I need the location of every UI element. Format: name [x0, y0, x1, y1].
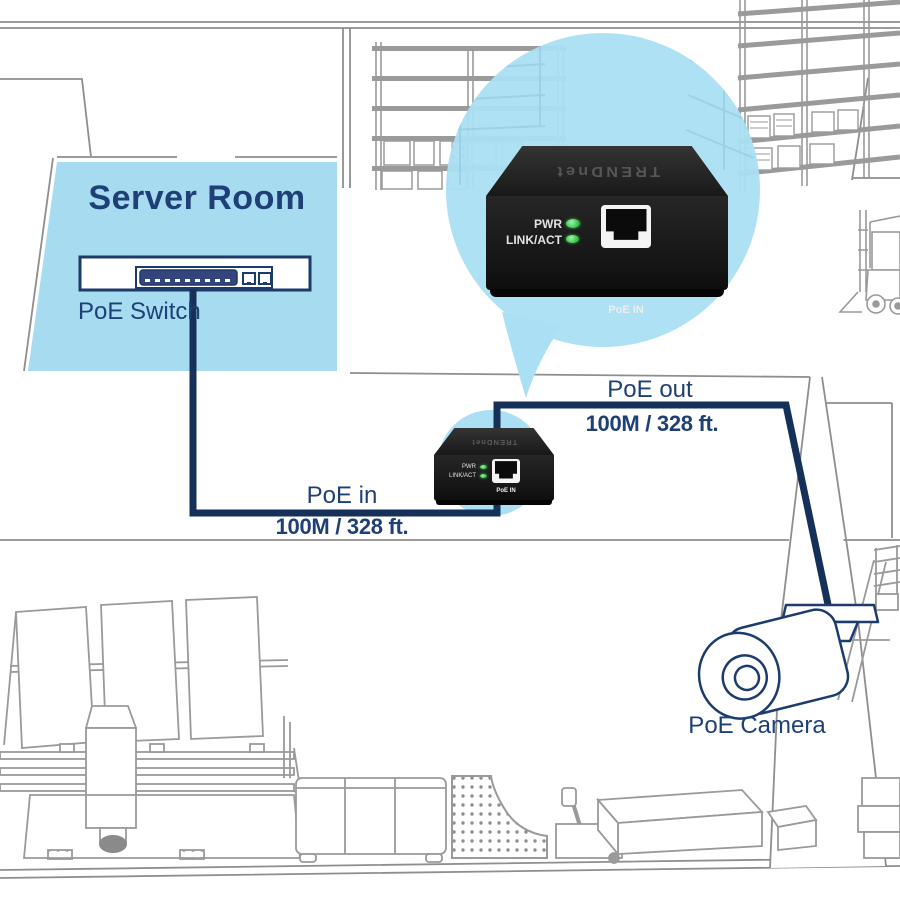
poe-extender-closeup: TRENDnet PWR LINK/ACT PoE IN [486, 146, 728, 298]
poe-switch-label: PoE Switch [78, 298, 201, 326]
extender-base [490, 289, 724, 297]
pwr-label: PWR [438, 464, 476, 470]
extender-top-face: TRENDnet [486, 146, 728, 196]
link-act-led [480, 474, 487, 478]
pwr-led [566, 219, 580, 228]
poe-in-label: PoE in [307, 482, 378, 510]
trendnet-logo: TRENDnet [554, 163, 660, 180]
dotted-ramp [452, 776, 547, 858]
diagram-canvas: Server Room PoE Switch PoE in 100M / 328… [0, 0, 900, 900]
side-shelf [874, 545, 900, 612]
poe-out-label: PoE out [607, 376, 692, 404]
link-act-label: LINK/ACT [496, 233, 562, 247]
pwr-label: PWR [496, 217, 562, 231]
extender-front-panel: PWR LINK/ACT PoE IN [434, 455, 554, 501]
poe-out-distance-label: 100M / 328 ft. [586, 411, 719, 437]
warehouse-cart [284, 716, 446, 862]
poe-extender-device: TRENDnet PWR LINK/ACT PoE IN [434, 428, 554, 506]
extender-top-face: TRENDnet [434, 428, 554, 455]
rj45-jack-opening [495, 461, 518, 481]
poe-in-distance-label: 100M / 328 ft. [276, 514, 409, 540]
link-act-label: LINK/ACT [438, 473, 476, 479]
extender-base [436, 500, 552, 505]
rj45-jack-opening [606, 209, 647, 244]
server-room-title-text: Server Room [88, 179, 305, 218]
rj45-port [601, 205, 651, 248]
cnc-machine [0, 597, 301, 859]
rj45-port [492, 459, 520, 483]
trendnet-logo: TRENDnet [471, 438, 517, 445]
poe-camera-label: PoE Camera [688, 712, 825, 740]
extender-front-panel: PWR LINK/ACT PoE IN [486, 196, 728, 290]
server-room-label: Server Room [197, 179, 414, 218]
link-act-led [566, 235, 579, 243]
poe-in-port-label: PoE IN [492, 488, 520, 494]
switch-port-strip [140, 270, 237, 285]
poe-in-port-label: PoE IN [599, 304, 653, 316]
poe-switch [80, 257, 310, 290]
pwr-led [480, 465, 487, 469]
forklift [840, 210, 900, 314]
